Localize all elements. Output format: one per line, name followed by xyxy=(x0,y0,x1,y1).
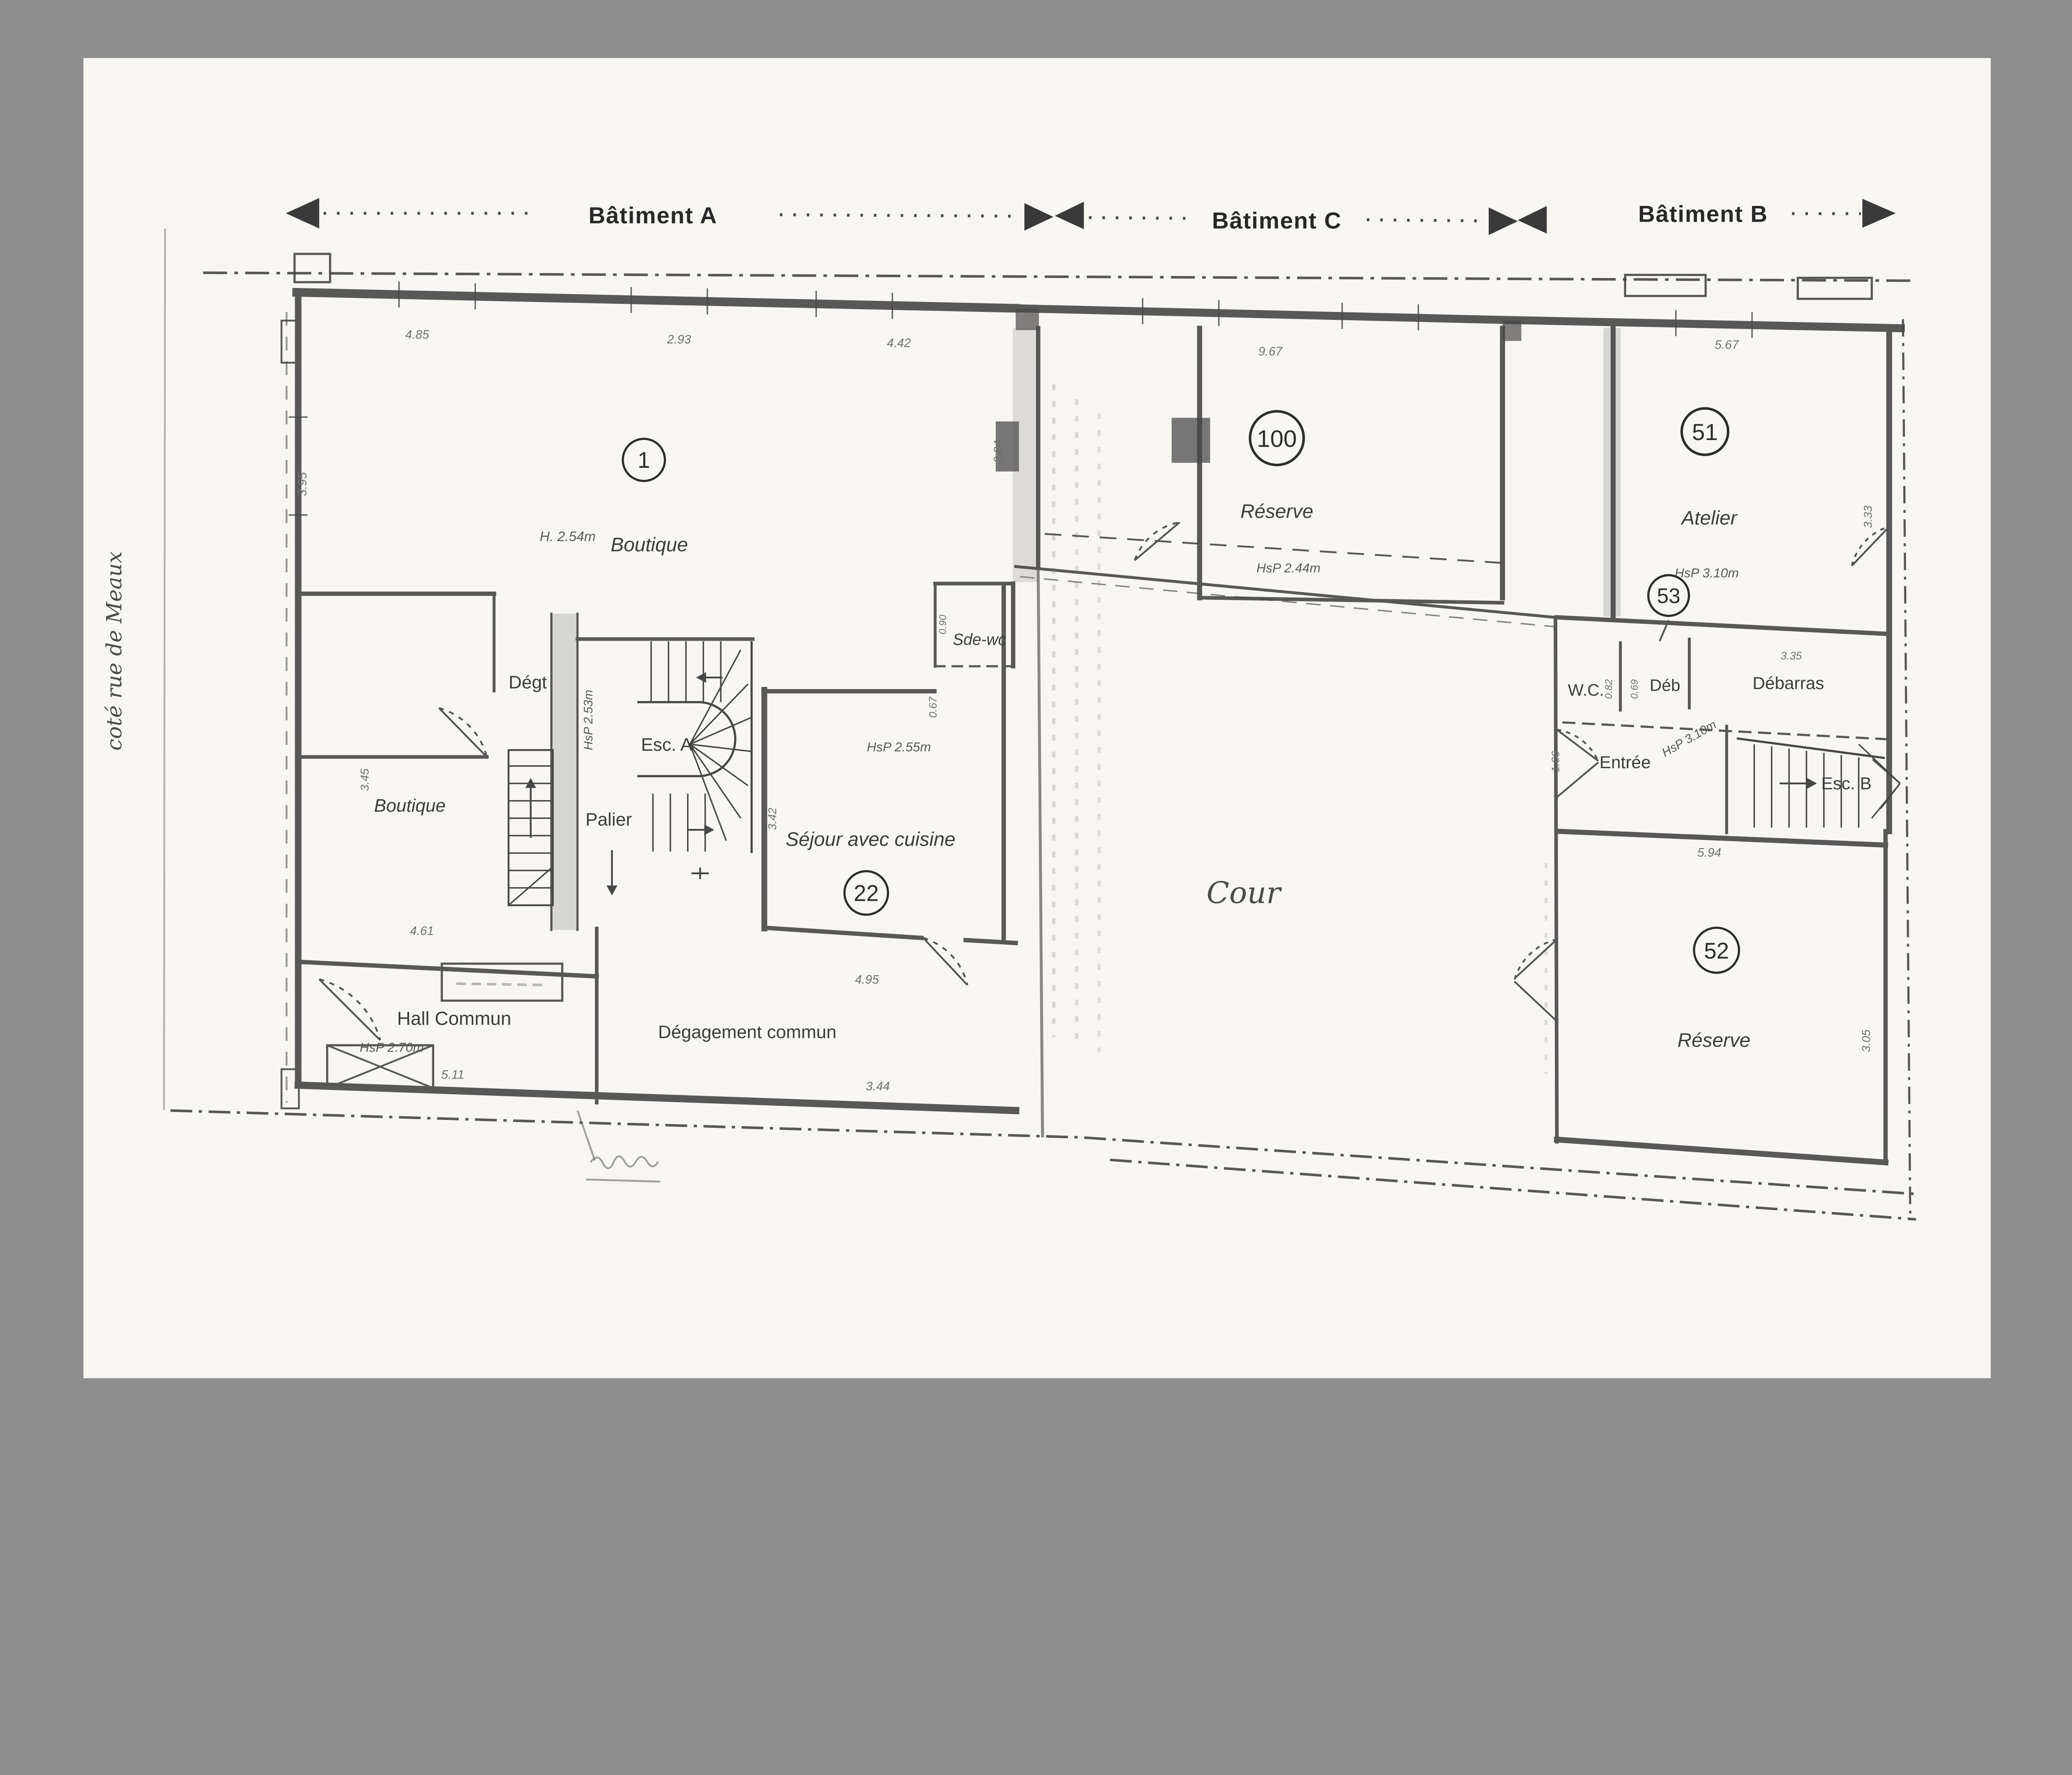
dim-r52-w: 5.94 xyxy=(1697,846,1721,860)
lot-number-1: 1 xyxy=(638,447,650,473)
lot-number-100: 100 xyxy=(1257,426,1297,452)
dim-sejour-h: 3.42 xyxy=(766,808,779,830)
wall-pier xyxy=(1172,418,1210,463)
dim-sejour-w: 4.95 xyxy=(855,973,879,987)
dim-r52-h: 3.05 xyxy=(1859,1030,1872,1052)
street-name-label: coté rue de Meaux xyxy=(102,551,126,751)
page-fold-line xyxy=(164,228,165,1110)
esc-a-label: Esc. A xyxy=(641,735,693,755)
batiment-c-label: Bâtiment C xyxy=(1212,207,1342,233)
reserve52-label: Réserve xyxy=(1677,1029,1750,1051)
wc-label: W.C. xyxy=(1568,681,1604,699)
dim-b-right: 3.33 xyxy=(1861,505,1874,528)
debarras-label: Débarras xyxy=(1752,673,1824,693)
dim-boutique-w: 4.61 xyxy=(410,924,434,938)
dim-entree-h: 1.06 xyxy=(1549,751,1561,772)
boutique1-label: Boutique xyxy=(611,534,688,556)
dim-b-top: 5.67 xyxy=(1715,338,1739,352)
dim-c-top: 9.67 xyxy=(1259,345,1283,358)
lot-number-22: 22 xyxy=(854,880,879,906)
dim-a-left: 3.95 xyxy=(296,472,310,496)
dim-hall-w: 5.11 xyxy=(441,1068,465,1081)
sejour22-height-note: HsP 2.55m xyxy=(867,740,931,754)
lot-number-51: 51 xyxy=(1692,419,1718,445)
batiment-b-label: Bâtiment B xyxy=(1638,201,1768,227)
hall-commun-label: Hall Commun xyxy=(397,1008,511,1029)
dim-sde-h: 0.90 xyxy=(937,614,949,634)
reserve100-label: Réserve xyxy=(1240,501,1313,522)
degagement-label: Dégagement commun xyxy=(658,1022,836,1042)
dim-a1: 4.85 xyxy=(405,328,429,342)
lot-number-53: 53 xyxy=(1657,584,1680,608)
cour-label: Cour xyxy=(1206,875,1282,910)
batiment-a-label: Bâtiment A xyxy=(588,202,717,228)
dim-c-left: 2.84 xyxy=(992,440,1005,464)
entree-label: Entrée xyxy=(1600,752,1651,772)
palier-label: Palier xyxy=(586,809,632,829)
atelier51-label: Atelier xyxy=(1680,507,1738,529)
deb-label: Déb xyxy=(1650,676,1680,695)
scanned-floorplan-page: Bâtiment A Bâtiment C Bâtiment B coté ru… xyxy=(0,0,2072,1554)
atelier51-height-note: HsP 3.10m xyxy=(1675,566,1739,580)
sde-wc-label: Sde-wc xyxy=(953,631,1006,648)
dim-sde-b: 0.67 xyxy=(927,696,939,718)
palier-height-note: HsP 2.53m xyxy=(581,690,595,750)
floorplan-canvas: Bâtiment A Bâtiment C Bâtiment B coté ru… xyxy=(0,0,2072,1554)
dim-a2: 2.93 xyxy=(667,333,691,346)
boutique-bas-label: Boutique xyxy=(374,796,446,816)
esc-b-label: Esc. B xyxy=(1821,774,1871,793)
sejour22-label: Séjour avec cuisine xyxy=(786,828,956,850)
hall-height-note: HsP 2.70m xyxy=(360,1040,424,1055)
dim-degagement-w: 3.44 xyxy=(866,1079,890,1093)
dim-boutique-h: 3.45 xyxy=(358,768,371,791)
reserve100-height-note: HsP 2.44m xyxy=(1256,560,1321,575)
dim-wc-w: 0.82 xyxy=(1603,679,1615,699)
dim-deb-w: 0.69 xyxy=(1629,679,1640,699)
dim-debarras-w: 3.35 xyxy=(1781,649,1802,662)
dim-a3: 4.42 xyxy=(887,336,911,350)
boutique1-height-note: H. 2.54m xyxy=(540,529,595,544)
degt-label: Dégt xyxy=(508,672,547,692)
lot-number-52: 52 xyxy=(1704,938,1729,964)
